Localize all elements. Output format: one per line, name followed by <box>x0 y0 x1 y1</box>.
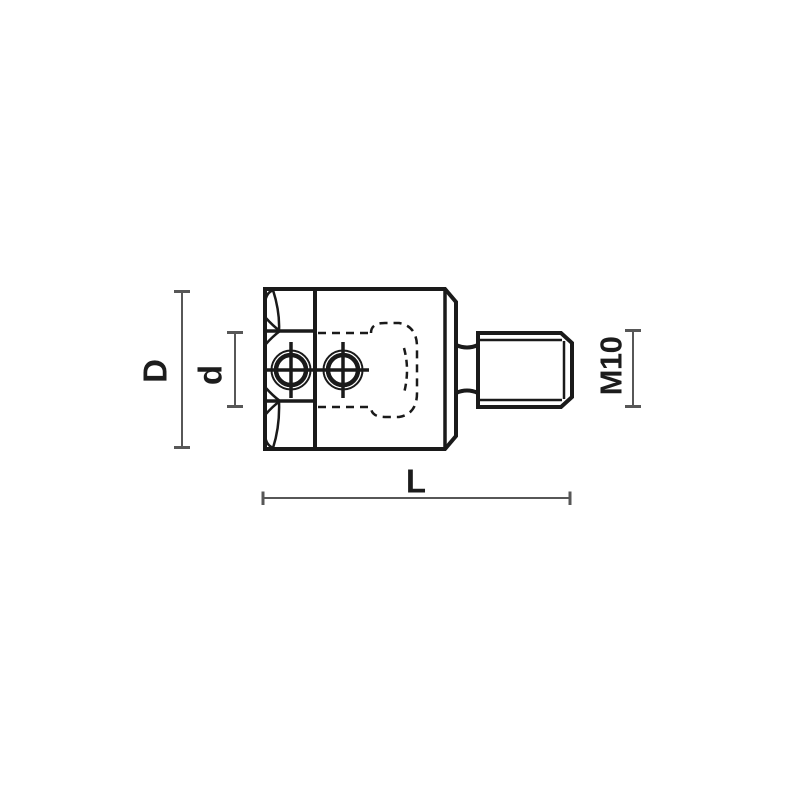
outer-diameter-label: D <box>139 359 172 383</box>
neck <box>456 345 478 393</box>
threaded-stud <box>478 333 572 407</box>
overall-length-label: L <box>406 465 426 498</box>
technical-drawing-canvas: D d L M10 <box>0 0 800 800</box>
neck-top-line <box>456 345 478 348</box>
neck-bottom-line <box>456 391 478 394</box>
bore-end-hidden-outline <box>371 323 417 417</box>
dimension-bore-diameter <box>227 333 243 407</box>
dimension-outer-diameter <box>174 292 190 448</box>
bore-diameter-label: d <box>194 365 227 385</box>
thread-stud-outline <box>478 333 572 407</box>
thread-size-label: M10 <box>596 337 627 396</box>
bore-end-inner-arc <box>404 348 407 393</box>
adapter-drawing <box>0 0 800 800</box>
